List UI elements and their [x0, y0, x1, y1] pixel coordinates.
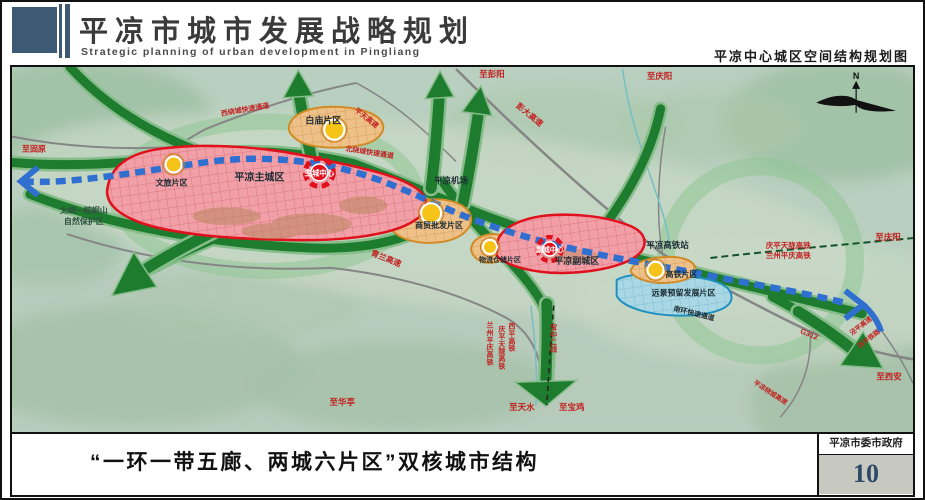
structure-caption: “一环一带五廊、两城六片区”双核城市结构 — [90, 434, 539, 495]
map-label-lzpq-gaotie: 兰州平庆高铁 — [766, 250, 811, 260]
map-label-v-qptl: 庆平天陇高铁 — [497, 325, 506, 371]
map-label-wenlv: 文旅片区 — [156, 177, 188, 187]
map-label-qptl-gaotie: 庆平天陇高铁 — [766, 240, 811, 250]
map-label-fucheng: 平凉副城区 — [554, 255, 599, 266]
page-subtitle: Strategic planning of urban development … — [81, 46, 420, 58]
map-label-zhucheng: 平凉主城区 — [235, 170, 285, 183]
publisher-name: 平凉市委市政府 — [819, 434, 913, 455]
map-label-gaotiezhan: 平凉高铁站 — [646, 240, 689, 250]
plan-document-page: 平凉市城市发展战略规划 Strategic planning of urban … — [0, 0, 925, 500]
page-header: 平凉市城市发展战略规划 Strategic planning of urban … — [2, 2, 923, 65]
content-frame: N 白庙片区文旅片区平凉主城区主城中心商贸批发片区物流仓储片区副城中心平凉副城区… — [10, 65, 915, 497]
logo-bar — [65, 4, 70, 58]
map-label-zhi-huating: 至华亭 — [330, 397, 356, 407]
map-area: N 白庙片区文旅片区平凉主城区主城中心商贸批发片区物流仓储片区副城中心平凉副城区… — [12, 67, 913, 434]
footer-bar: “一环一带五廊、两城六片区”双核城市结构 平凉市委市政府 10 — [12, 434, 913, 495]
district-node — [483, 240, 497, 254]
map-sheet-caption: 平凉中心城区空间结构规划图 — [714, 46, 909, 65]
map-label-zhi-pengyang: 至彭阳 — [479, 69, 504, 79]
map-label-zhi-xian: 至西安 — [876, 371, 902, 381]
page-number: 10 — [819, 455, 913, 494]
logo-bar — [59, 4, 62, 58]
map-label-shangmao: 商贸批发片区 — [415, 220, 463, 230]
map-label-fucheng-center: 副城中心 — [536, 245, 564, 254]
map-label-gaotie-pianqu: 高铁片区 — [666, 269, 698, 279]
map-label-zhucheng-center: 主城中心 — [304, 167, 334, 177]
map-label-zhi-guyuan: 至固原 — [22, 145, 46, 154]
map-label-zhi-qingyang-e: 至庆阳 — [875, 232, 900, 242]
map-label-baohuqu: 自然保护区 — [64, 216, 104, 226]
publisher-box: 平凉市委市政府 10 — [817, 434, 913, 495]
page-title: 平凉市城市发展战略规划 — [79, 8, 475, 50]
map-label-baimiao: 白庙片区 — [305, 115, 341, 126]
logo-square — [12, 7, 57, 53]
planning-map: N 白庙片区文旅片区平凉主城区主城中心商贸批发片区物流仓储片区副城中心平凉副城区… — [12, 67, 913, 432]
map-label-v-lzpq: 兰州平庆高铁 — [485, 321, 493, 367]
compass-north-label: N — [853, 71, 859, 81]
map-label-jichang: 平凉机场 — [434, 175, 468, 185]
map-label-zhi-tianshui: 至天水 — [509, 402, 535, 412]
map-label-wuliu: 物流仓储片区 — [479, 255, 521, 264]
district-node — [166, 157, 182, 173]
district-node — [648, 262, 664, 278]
map-label-v-baozhong: 宝中二线 — [550, 323, 557, 354]
map-label-zhi-baoji: 至宝鸡 — [559, 402, 585, 412]
map-label-yuanjing: 远景预留发展片区 — [652, 288, 716, 298]
map-label-v-xiping: 西平高铁 — [508, 323, 515, 353]
map-label-taitong: 太统—崆峒山 — [60, 205, 108, 215]
map-label-zhi-qingyang-n: 至庆阳 — [647, 71, 672, 81]
